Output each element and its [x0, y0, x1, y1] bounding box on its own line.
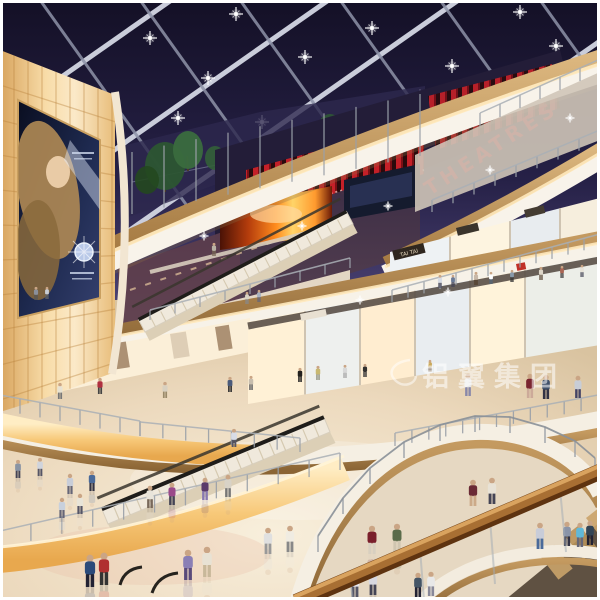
perfume-billboard: [6, 100, 100, 318]
mall-atrium-rendering: THEATRES: [0, 0, 600, 600]
rendering-canvas: THEATRES: [0, 0, 600, 600]
watermark-text: 铝翼集团: [422, 361, 566, 393]
glowing-panel-wall: [0, 50, 125, 412]
